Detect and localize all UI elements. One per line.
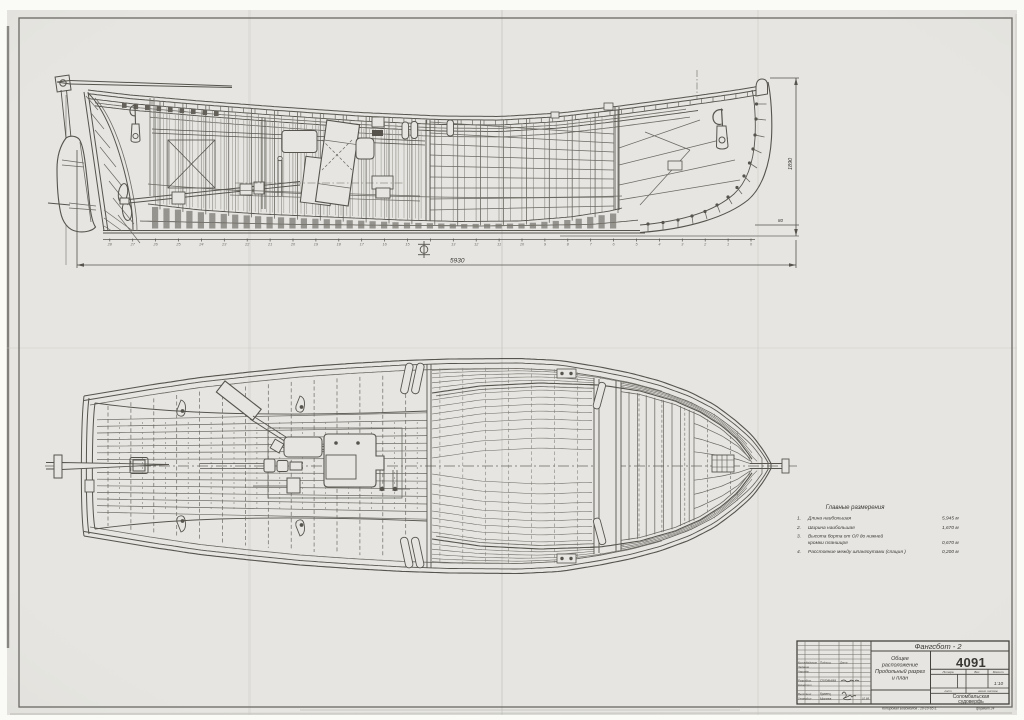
svg-text:Задание: Задание xyxy=(798,665,809,669)
svg-text:расположение: расположение xyxy=(881,663,918,669)
svg-text:Фангсбот - 2: Фангсбот - 2 xyxy=(914,642,962,651)
svg-text:24: 24 xyxy=(198,242,203,246)
svg-text:Литера: Литера xyxy=(941,670,954,674)
svg-text:1890: 1890 xyxy=(788,157,794,170)
svg-text:3.: 3. xyxy=(797,534,801,540)
svg-text:Выполнил: Выполнил xyxy=(798,692,812,696)
svg-text:5,945 м: 5,945 м xyxy=(942,516,959,522)
svg-text:кромки планширя: кромки планширя xyxy=(808,541,848,546)
svg-text:Разработ.: Разработ. xyxy=(798,679,812,683)
svg-text:11: 11 xyxy=(497,242,501,246)
svg-text:21: 21 xyxy=(267,242,272,246)
svg-text:1:10: 1:10 xyxy=(994,681,1004,687)
svg-text:лист: лист xyxy=(943,689,952,693)
svg-text:Соловьева: Соловьева xyxy=(820,679,836,683)
svg-text:Ширина наибольшая: Ширина наибольшая xyxy=(808,525,855,531)
svg-text:28: 28 xyxy=(107,242,113,246)
svg-text:4: 4 xyxy=(658,242,660,246)
svg-text:1: 1 xyxy=(727,242,729,246)
svg-text:Длина наибольшая: Длина наибольшая xyxy=(807,516,852,522)
svg-text:Подпись: Подпись xyxy=(820,660,832,664)
svg-text:Масшт.: Масшт. xyxy=(993,670,1005,674)
svg-text:Утвердил: Утвердил xyxy=(798,697,812,701)
svg-text:80: 80 xyxy=(778,218,784,223)
svg-text:Вес: Вес xyxy=(974,670,980,674)
svg-text:Высота борта от ОЛ до нижней: Высота борта от ОЛ до нижней xyxy=(808,533,883,540)
svg-text:Кравец: Кравец xyxy=(820,692,831,696)
svg-text:Копировал Богомолов , 10-10-: Копировал Богомолов , 10-10-65 г. xyxy=(882,707,937,711)
svg-text:26: 26 xyxy=(152,242,158,246)
svg-text:5930: 5930 xyxy=(450,258,465,265)
svg-text:1,670 м: 1,670 м xyxy=(942,525,959,531)
svg-text:всего листов: всего листов xyxy=(978,689,998,693)
svg-text:Главные размерения: Главные размерения xyxy=(826,505,886,511)
svg-text:0,200 м: 0,200 м xyxy=(942,549,959,555)
svg-text:2.: 2. xyxy=(796,525,801,531)
svg-text:судоверфь: судоверфь xyxy=(958,699,984,705)
svg-text:25: 25 xyxy=(175,242,181,246)
svg-text:22: 22 xyxy=(244,242,250,246)
svg-text:27: 27 xyxy=(130,242,136,246)
svg-text:20: 20 xyxy=(290,242,296,246)
svg-text:Продольный разрез: Продольный разрез xyxy=(875,668,925,675)
svg-text:Дата: Дата xyxy=(839,660,848,664)
svg-text:Мосеев: Мосеев xyxy=(820,697,832,701)
svg-text:23: 23 xyxy=(221,242,227,246)
svg-text:1.: 1. xyxy=(797,516,801,522)
svg-text:Чертёж: Чертёж xyxy=(798,670,810,674)
svg-text:Начертил: Начертил xyxy=(798,683,812,687)
svg-text:формат 24: формат 24 xyxy=(976,707,994,711)
svg-text:10.68: 10.68 xyxy=(862,697,869,701)
svg-text:№докум: №докум xyxy=(806,660,817,664)
svg-text:Расстояние между шпангоутами (: Расстояние между шпангоутами (спация ) xyxy=(808,549,906,555)
svg-text:Общее: Общее xyxy=(891,656,909,662)
svg-text:и план: и план xyxy=(892,676,909,682)
svg-text:0,670 м: 0,670 м xyxy=(942,540,959,546)
svg-text:4.: 4. xyxy=(797,549,801,555)
svg-text:4091: 4091 xyxy=(956,655,986,670)
